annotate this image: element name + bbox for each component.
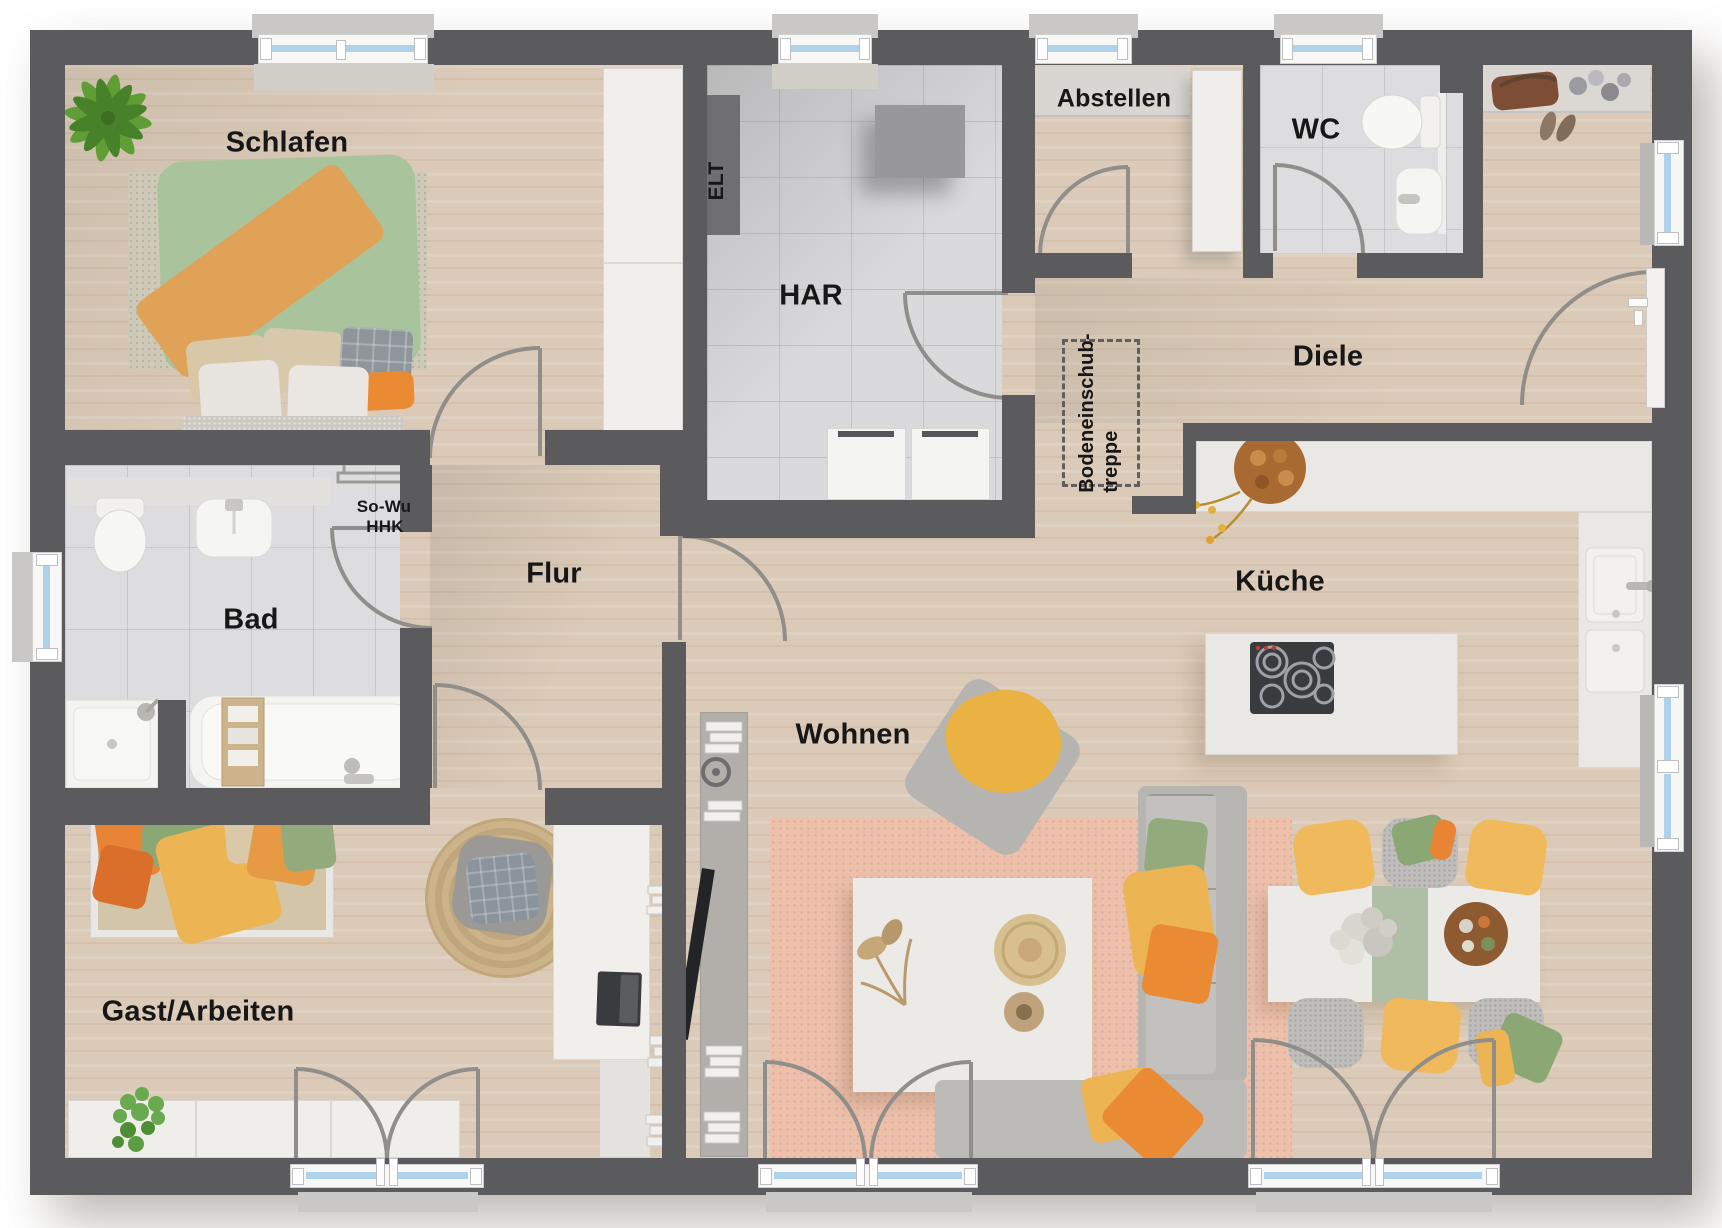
- window-cap: [1657, 838, 1679, 850]
- wall: [1463, 65, 1483, 278]
- door-cap: [292, 1168, 304, 1185]
- window-glazing: [1664, 154, 1671, 232]
- entry-door-handle: [1634, 310, 1643, 326]
- window-glazing: [1664, 698, 1671, 760]
- wall: [158, 700, 186, 788]
- window-glazing: [1292, 45, 1365, 52]
- wc-sink: [1396, 168, 1442, 234]
- palm-plant: [63, 73, 153, 163]
- annotation-attic-line2: treppe: [1099, 333, 1123, 492]
- door-backing: [766, 1192, 972, 1212]
- bathtub: [190, 696, 425, 788]
- window-cap: [414, 38, 426, 60]
- window-cap: [1657, 232, 1679, 244]
- window-cap: [1362, 38, 1373, 60]
- door-cap: [1250, 1168, 1262, 1185]
- window-niche: [1640, 143, 1655, 245]
- door-cap: [470, 1168, 482, 1185]
- wall: [1132, 496, 1196, 514]
- door-cap: [964, 1168, 976, 1185]
- kitchen-sink: [1586, 548, 1658, 692]
- annotation-elt: ELT: [705, 162, 729, 201]
- annotation-hhk: HHK: [366, 517, 403, 537]
- window-cap: [336, 40, 346, 60]
- window-cap: [1657, 760, 1679, 773]
- window-cap: [859, 38, 870, 60]
- wall: [65, 430, 430, 465]
- annotation-so-wu: So-Wu: [357, 497, 412, 517]
- bath-toilet: [94, 498, 146, 572]
- wall: [400, 628, 432, 788]
- door-handles: [1362, 1158, 1371, 1186]
- window-cap: [260, 38, 272, 60]
- annotation-attic-line1: Bodeneinschub-: [1075, 333, 1099, 492]
- door-arcs: [296, 165, 1655, 1160]
- window-glazing: [1664, 774, 1671, 838]
- bookshelf-books: [646, 722, 742, 1146]
- door-handles: [1375, 1158, 1384, 1186]
- wall: [1183, 423, 1652, 441]
- room-label-bad: Bad: [223, 604, 278, 637]
- window-cap: [780, 38, 791, 60]
- door-handles: [856, 1158, 865, 1186]
- wall: [1002, 253, 1132, 278]
- window-glazing: [1047, 45, 1120, 52]
- door-backing: [1256, 1192, 1492, 1212]
- shoes: [1537, 110, 1580, 145]
- window-cap: [36, 648, 58, 660]
- door-glazing: [1382, 1172, 1482, 1179]
- room-label-gast: Gast/Arbeiten: [102, 996, 295, 1029]
- annotation-attic: Bodeneinschub- treppe: [1075, 333, 1123, 492]
- window-sill: [772, 64, 878, 89]
- wall: [662, 642, 686, 1158]
- cooktop-indicators: [1256, 646, 1276, 650]
- window-cap: [1117, 38, 1128, 60]
- room-label-abstellen: Abstellen: [1057, 85, 1171, 114]
- fruit-bowl: [1188, 432, 1306, 544]
- wall: [1440, 65, 1463, 93]
- wall: [683, 500, 1035, 538]
- wall: [683, 65, 707, 535]
- entry-door-handle: [1628, 298, 1648, 307]
- bath-sink: [196, 499, 272, 557]
- door-cap: [1486, 1168, 1498, 1185]
- shelf-decor: [1500, 70, 1631, 101]
- window-glazing: [790, 45, 860, 52]
- window-glazing: [43, 566, 50, 648]
- window-niche: [1640, 695, 1655, 847]
- room-label-kueche: Küche: [1235, 566, 1325, 599]
- window-cap: [1657, 142, 1679, 154]
- room-label-schlafen: Schlafen: [226, 127, 348, 160]
- window-cap: [1037, 38, 1048, 60]
- room-label-flur: Flur: [526, 558, 582, 591]
- wall: [1243, 65, 1260, 278]
- shower: [66, 700, 158, 788]
- wall: [545, 788, 686, 825]
- door-handles: [869, 1158, 878, 1186]
- wall: [65, 788, 430, 825]
- sideboard-plant: [112, 1087, 165, 1152]
- window-cap: [1657, 686, 1679, 698]
- entry-door-leaf: [1646, 268, 1665, 408]
- floor-plan: Schlafen ELT HAR Abstellen WC Diele So-W…: [0, 0, 1722, 1228]
- dining-decor: [1330, 902, 1508, 966]
- door-glazing: [394, 1172, 468, 1179]
- door-glazing: [1264, 1172, 1362, 1179]
- wall: [1243, 253, 1273, 278]
- window-sill: [254, 64, 434, 91]
- window-cap: [1282, 38, 1293, 60]
- door-cap: [760, 1168, 772, 1185]
- cooktop-rings: [1257, 647, 1334, 707]
- room-label-wohnen: Wohnen: [795, 719, 910, 752]
- door-glazing: [306, 1172, 380, 1179]
- door-glazing: [774, 1172, 858, 1179]
- door-handles: [389, 1158, 398, 1186]
- door-backing: [298, 1192, 478, 1212]
- door-glazing: [876, 1172, 962, 1179]
- window-cap: [36, 554, 58, 566]
- room-label-diele: Diele: [1293, 341, 1363, 374]
- wall: [1002, 395, 1035, 538]
- door-handles: [376, 1158, 385, 1186]
- wall: [660, 430, 686, 536]
- room-label-wc: WC: [1292, 114, 1341, 147]
- coffee-table-decor: [853, 914, 1066, 1032]
- room-label-har: HAR: [779, 280, 842, 313]
